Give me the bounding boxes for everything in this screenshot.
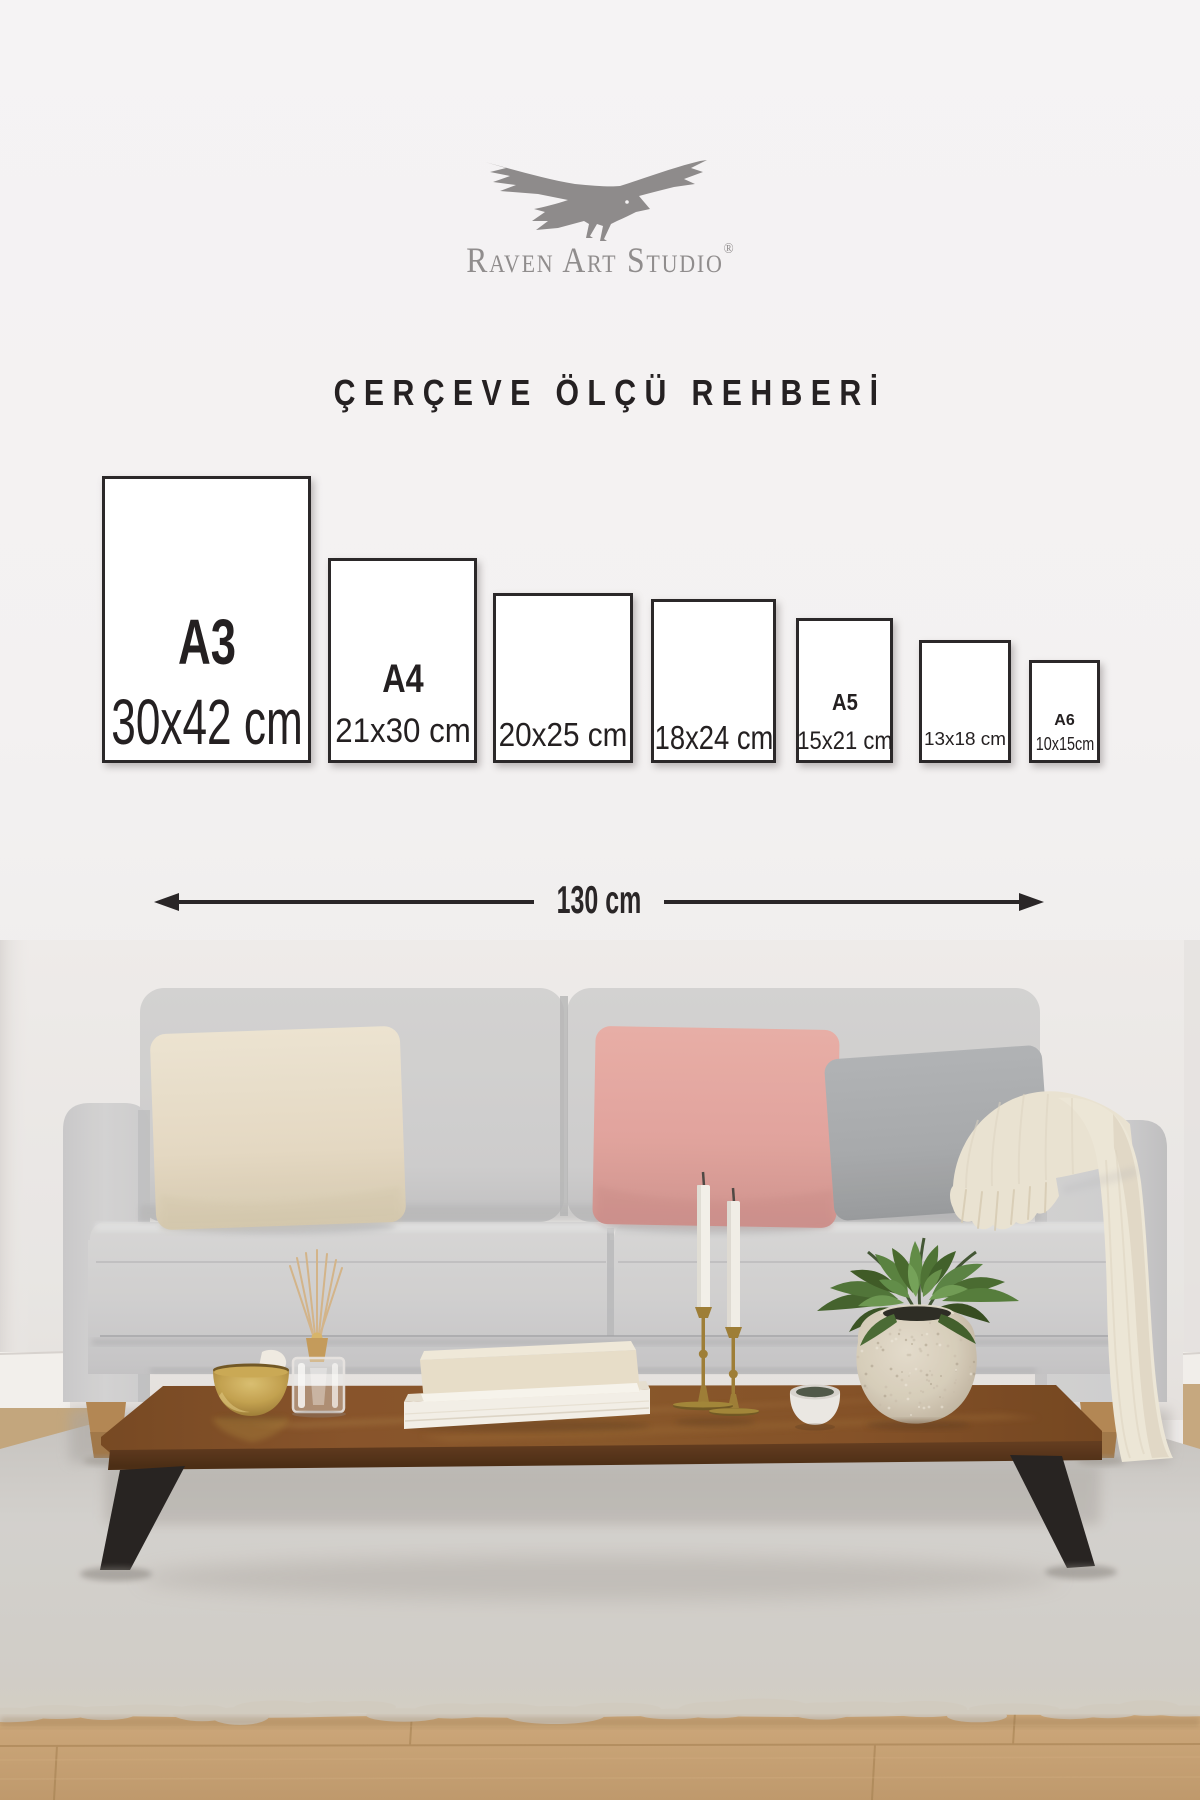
svg-text:130 cm: 130 cm — [557, 877, 642, 921]
